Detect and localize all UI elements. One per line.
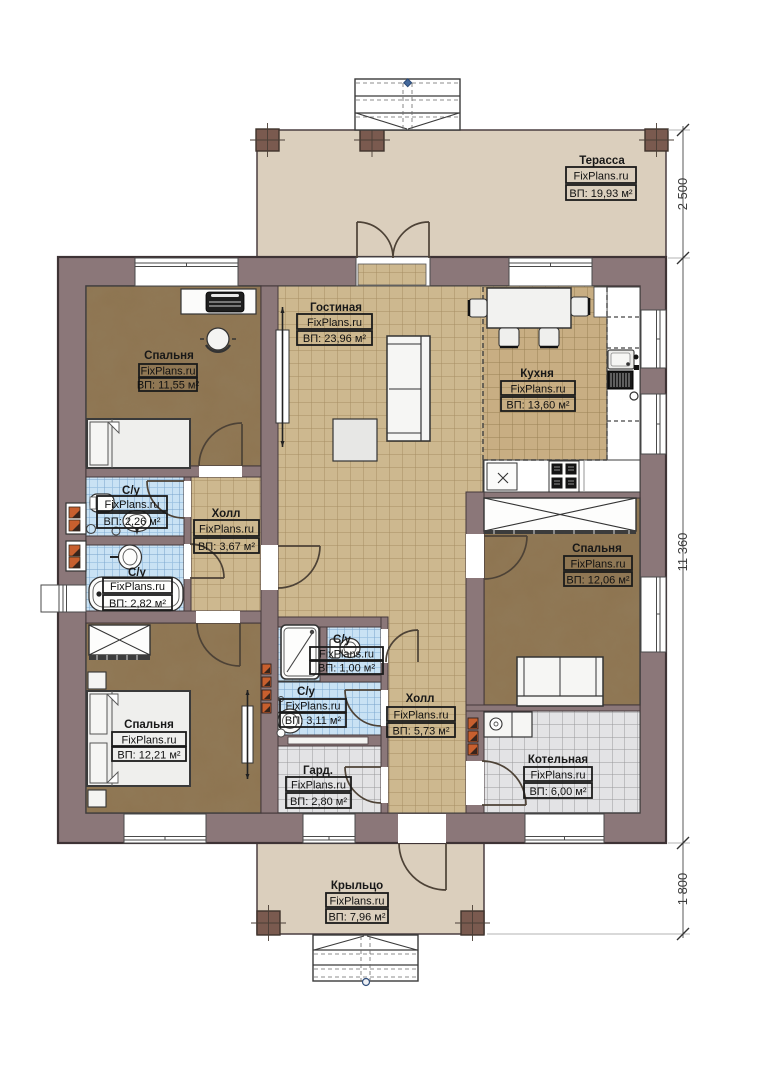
svg-text:2 500: 2 500 [675, 178, 690, 211]
svg-text:С/у: С/у [297, 686, 316, 698]
svg-text:FixPlans.ru: FixPlans.ru [530, 770, 585, 782]
svg-text:Гард.: Гард. [303, 765, 333, 777]
svg-text:ВП: 13,60 м²: ВП: 13,60 м² [506, 400, 570, 412]
svg-text:ВП: 7,96 м²: ВП: 7,96 м² [328, 912, 385, 924]
svg-text:ВП: 3,11 м²: ВП: 3,11 м² [285, 715, 342, 727]
svg-text:Гостиная: Гостиная [310, 302, 362, 314]
svg-text:FixPlans.ru: FixPlans.ru [319, 649, 374, 661]
svg-text:ВП: 11,55 м²: ВП: 11,55 м² [137, 380, 200, 392]
svg-text:FixPlans.ru: FixPlans.ru [285, 701, 340, 713]
svg-text:ВП: 12,21 м²: ВП: 12,21 м² [117, 750, 181, 762]
svg-text:1 800: 1 800 [675, 873, 690, 906]
svg-text:FixPlans.ru: FixPlans.ru [570, 559, 625, 571]
svg-text:ВП: 1,00 м²: ВП: 1,00 м² [318, 663, 375, 675]
svg-text:ВП: 3,67 м²: ВП: 3,67 м² [198, 541, 255, 553]
svg-text:FixPlans.ru: FixPlans.ru [110, 581, 165, 593]
svg-text:ВП: 2,26 м²: ВП: 2,26 м² [103, 516, 160, 528]
svg-text:FixPlans.ru: FixPlans.ru [104, 499, 159, 511]
svg-text:Кухня: Кухня [520, 368, 554, 380]
svg-text:FixPlans.ru: FixPlans.ru [393, 710, 448, 722]
svg-text:FixPlans.ru: FixPlans.ru [121, 735, 176, 747]
svg-text:Котельная: Котельная [528, 754, 588, 766]
svg-text:FixPlans.ru: FixPlans.ru [307, 317, 362, 329]
svg-text:ВП: 19,93 м²: ВП: 19,93 м² [569, 188, 633, 200]
svg-text:ВП: 6,00 м²: ВП: 6,00 м² [529, 786, 586, 798]
svg-text:FixPlans.ru: FixPlans.ru [140, 366, 195, 378]
svg-text:ВП: 23,96 м²: ВП: 23,96 м² [303, 333, 367, 345]
svg-text:FixPlans.ru: FixPlans.ru [573, 171, 628, 183]
svg-text:11 360: 11 360 [675, 533, 690, 572]
svg-text:ВП: 5,73 м²: ВП: 5,73 м² [392, 726, 449, 738]
svg-text:С/у: С/у [333, 634, 352, 646]
svg-text:Холл: Холл [212, 508, 241, 520]
svg-text:FixPlans.ru: FixPlans.ru [199, 524, 254, 536]
svg-text:Холл: Холл [406, 693, 435, 705]
svg-text:ВП: 2,82 м²: ВП: 2,82 м² [109, 598, 166, 610]
svg-text:FixPlans.ru: FixPlans.ru [329, 896, 384, 908]
svg-text:Терасса: Терасса [579, 155, 625, 167]
svg-text:Спальня: Спальня [124, 719, 174, 731]
svg-text:Спальня: Спальня [144, 350, 194, 362]
svg-text:ВП: 12,06 м²: ВП: 12,06 м² [566, 575, 630, 587]
svg-text:ВП: 2,80 м²: ВП: 2,80 м² [290, 796, 347, 808]
svg-text:FixPlans.ru: FixPlans.ru [510, 384, 565, 396]
svg-text:Крыльцо: Крыльцо [331, 880, 383, 892]
svg-text:FixPlans.ru: FixPlans.ru [291, 780, 346, 792]
svg-text:Спальня: Спальня [572, 543, 622, 555]
